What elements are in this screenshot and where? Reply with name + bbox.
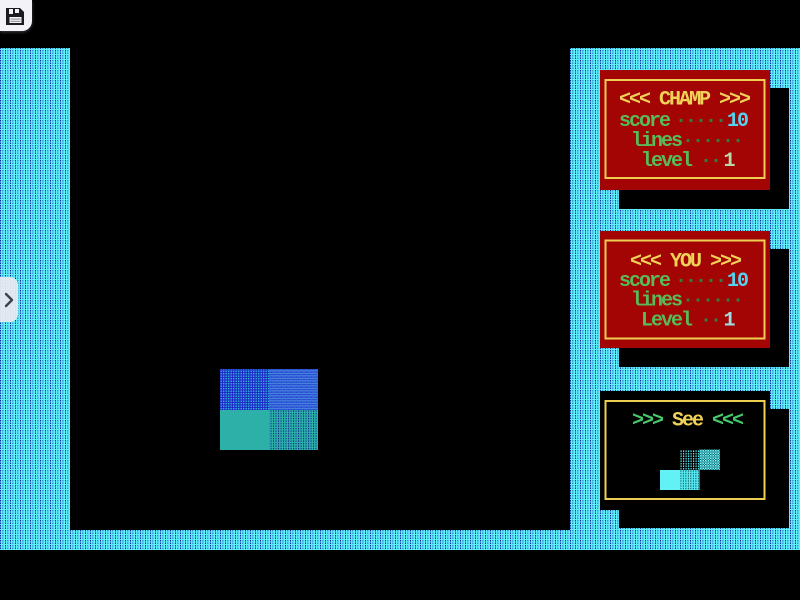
svg-text:>>> See <<<: >>> See <<< [632, 410, 744, 433]
svg-text:··: ·· [700, 150, 720, 173]
svg-text:<<< CHAMP >>>: <<< CHAMP >>> [619, 89, 751, 112]
svg-text:level: level [641, 150, 693, 173]
svg-text:··: ·· [700, 310, 720, 333]
svg-text:Level: Level [641, 310, 693, 333]
